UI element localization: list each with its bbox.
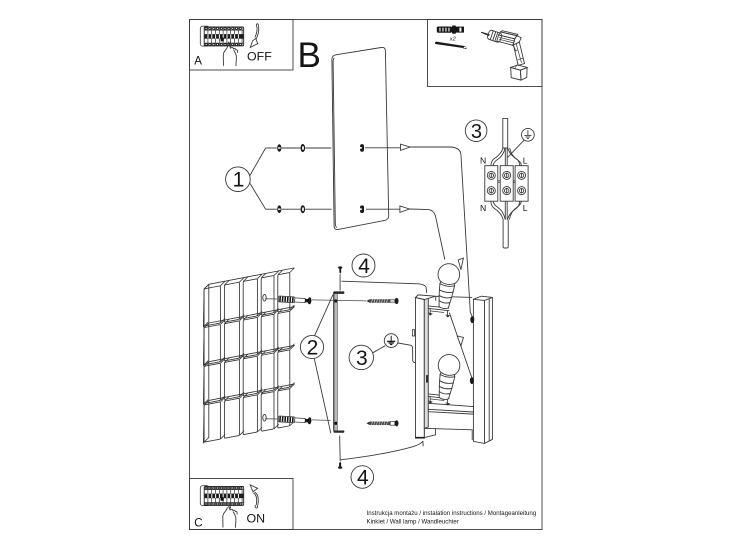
svg-text:L: L bbox=[523, 155, 528, 165]
svg-text:x2: x2 bbox=[449, 36, 457, 42]
svg-text:B: B bbox=[298, 36, 321, 75]
svg-text:OFF: OFF bbox=[247, 50, 272, 64]
svg-text:L: L bbox=[523, 203, 528, 213]
svg-text:4: 4 bbox=[357, 466, 369, 489]
svg-text:Kinkiet / Wall lamp / Wandleuc: Kinkiet / Wall lamp / Wandleuchter bbox=[367, 519, 459, 526]
svg-text:3: 3 bbox=[471, 121, 482, 143]
svg-text:C: C bbox=[194, 517, 202, 529]
svg-text:N: N bbox=[480, 203, 486, 213]
svg-text:1: 1 bbox=[233, 169, 245, 192]
svg-text:A: A bbox=[194, 55, 202, 67]
svg-text:N: N bbox=[480, 155, 486, 165]
svg-text:3: 3 bbox=[356, 347, 368, 370]
svg-text:Instrukcja montażu / instalati: Instrukcja montażu / instalation instruc… bbox=[367, 510, 537, 517]
svg-text:2: 2 bbox=[307, 336, 319, 359]
svg-text:ON: ON bbox=[247, 512, 266, 526]
svg-text:4: 4 bbox=[358, 255, 370, 278]
